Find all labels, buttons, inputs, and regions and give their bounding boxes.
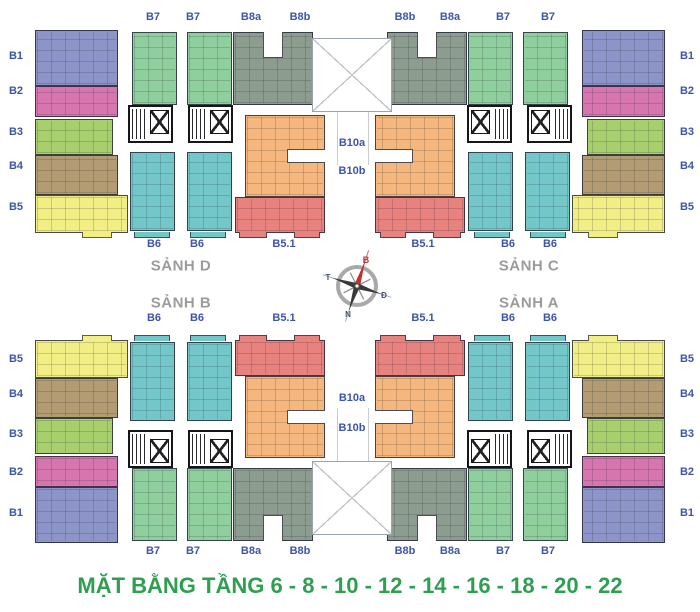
balcony-tab (190, 335, 226, 341)
unit-b7 (523, 468, 568, 541)
stair-elevator-core (188, 105, 233, 143)
unit-label-b4: B4 (9, 160, 23, 172)
compass-rose-icon: B T Đ N (322, 246, 392, 326)
tower-bottom-left-wing (0, 340, 350, 543)
unit-b6 (130, 152, 175, 231)
unit-b51 (375, 340, 465, 376)
unit-b3 (587, 418, 665, 454)
unit-label-b7: B7 (186, 545, 200, 557)
unit-label-b7: B7 (186, 11, 200, 23)
unit-b5 (35, 195, 128, 233)
unit-label-b6: B6 (190, 312, 204, 324)
stair-elevator-core (128, 105, 173, 143)
balcony-tab (433, 335, 461, 341)
balcony-tab (294, 232, 320, 238)
unit-label-b7: B7 (541, 545, 555, 557)
unit-b51 (235, 340, 325, 376)
unit-b1 (582, 487, 665, 543)
unit-label-b1: B1 (9, 507, 23, 519)
unit-label-b3: B3 (680, 428, 694, 440)
unit-label-b51: B5.1 (272, 238, 295, 250)
unit-label-b2: B2 (680, 85, 694, 97)
unit-b7 (468, 32, 513, 105)
unit-b2 (582, 86, 665, 117)
unit-b7 (468, 468, 513, 541)
unit-b10-notch (287, 149, 325, 163)
unit-label-b2: B2 (9, 466, 23, 478)
lobby-label-sanh-d: SẢNH D (151, 258, 212, 275)
unit-label-b8b: B8b (395, 545, 416, 557)
unit-b51 (235, 197, 325, 233)
unit-b8-notch (263, 32, 283, 58)
unit-label-b8a: B8a (440, 545, 460, 557)
unit-b3 (35, 418, 113, 454)
compass-north-label: B (363, 255, 370, 265)
balcony-tab (82, 335, 112, 341)
unit-label-b7: B7 (146, 11, 160, 23)
unit-label-b5: B5 (9, 201, 23, 213)
compass-west-label: T (326, 273, 331, 282)
unit-b7 (523, 32, 568, 105)
unit-label-b3: B3 (680, 126, 694, 138)
unit-b1 (35, 487, 118, 543)
unit-label-b6: B6 (190, 238, 204, 250)
unit-label-b8a: B8a (440, 11, 460, 23)
unit-b6 (187, 152, 232, 231)
unit-b10-notch (375, 410, 413, 424)
lobby-label-sanh-b: SẢNH B (151, 295, 212, 312)
unit-b3 (587, 119, 665, 155)
unit-b8-notch (417, 32, 437, 58)
balcony-tab (294, 335, 320, 341)
unit-b6 (187, 342, 232, 421)
unit-label-b8b: B8b (290, 11, 311, 23)
unit-label-b1: B1 (9, 50, 23, 62)
unit-b51 (375, 197, 465, 233)
unit-b4 (582, 155, 665, 195)
unit-label-b7: B7 (496, 11, 510, 23)
unit-b6 (468, 152, 513, 231)
unit-label-b8a: B8a (241, 545, 261, 557)
unit-b10-notch (375, 149, 413, 163)
balcony-tab (82, 232, 112, 238)
unit-label-b6: B6 (501, 238, 515, 250)
unit-label-b2: B2 (9, 85, 23, 97)
compass-east-label: Đ (381, 291, 387, 300)
unit-label-b4: B4 (680, 160, 694, 172)
unit-b2 (35, 86, 118, 117)
tower-bottom (0, 340, 700, 543)
light-well (312, 38, 392, 112)
unit-label-b51: B5.1 (272, 312, 295, 324)
unit-b2 (582, 456, 665, 487)
unit-label-b7: B7 (496, 545, 510, 557)
stair-elevator-core (467, 430, 512, 468)
unit-b10-notch (287, 410, 325, 424)
unit-label-b10a: B10a (339, 137, 365, 149)
unit-b5 (35, 340, 128, 378)
stair-elevator-core (188, 430, 233, 468)
unit-label-b6: B6 (147, 312, 161, 324)
unit-label-b3: B3 (9, 428, 23, 440)
unit-label-b7: B7 (541, 11, 555, 23)
unit-label-b6: B6 (501, 312, 515, 324)
unit-label-b5: B5 (680, 201, 694, 213)
unit-b7 (132, 32, 177, 105)
balcony-tab (380, 232, 406, 238)
unit-b8-notch (263, 515, 283, 541)
stair-elevator-core (527, 105, 572, 143)
unit-label-b6: B6 (147, 238, 161, 250)
unit-label-b4: B4 (9, 388, 23, 400)
balcony-tab (239, 232, 267, 238)
unit-label-b2: B2 (680, 466, 694, 478)
unit-b6 (468, 342, 513, 421)
tower-bottom-right-wing (350, 340, 700, 543)
unit-label-b3: B3 (9, 126, 23, 138)
unit-b4 (35, 155, 118, 195)
unit-b6 (525, 152, 570, 231)
unit-b7 (187, 32, 232, 105)
light-well (312, 461, 392, 535)
tower-top-right-wing (350, 30, 700, 233)
stair-elevator-core (527, 430, 572, 468)
compass-south-label: N (345, 310, 351, 319)
balcony-tab (433, 232, 461, 238)
unit-b5 (572, 195, 665, 233)
unit-label-b1: B1 (680, 507, 694, 519)
unit-label-b10b: B10b (339, 165, 366, 177)
lobby-label-sanh-c: SẢNH C (499, 258, 560, 275)
balcony-tab (588, 232, 618, 238)
unit-label-b5: B5 (9, 353, 23, 365)
unit-label-b10b: B10b (339, 422, 366, 434)
balcony-tab (530, 335, 566, 341)
unit-b8-notch (417, 515, 437, 541)
unit-label-b10a: B10a (339, 392, 365, 404)
unit-b4 (582, 378, 665, 418)
stair-elevator-core (128, 430, 173, 468)
unit-label-b6: B6 (543, 238, 557, 250)
unit-label-b7: B7 (146, 545, 160, 557)
unit-b1 (35, 30, 118, 86)
unit-label-b8b: B8b (290, 545, 311, 557)
unit-b7 (187, 468, 232, 541)
unit-label-b8b: B8b (395, 11, 416, 23)
unit-b2 (35, 456, 118, 487)
tower-top (0, 30, 700, 233)
balcony-tab (380, 335, 406, 341)
tower-top-left-wing (0, 30, 350, 233)
unit-b4 (35, 378, 118, 418)
unit-label-b4: B4 (680, 388, 694, 400)
balcony-tab (474, 335, 510, 341)
unit-b6 (525, 342, 570, 421)
unit-label-b51: B5.1 (411, 238, 434, 250)
unit-label-b1: B1 (680, 50, 694, 62)
unit-b7 (132, 468, 177, 541)
corridor-channel (337, 408, 369, 461)
unit-b5 (572, 340, 665, 378)
balcony-tab (588, 335, 618, 341)
balcony-tab (134, 335, 170, 341)
unit-label-b6: B6 (543, 312, 557, 324)
unit-label-b51: B5.1 (411, 312, 434, 324)
unit-b3 (35, 119, 113, 155)
stair-elevator-core (467, 105, 512, 143)
balcony-tab (239, 335, 267, 341)
unit-label-b5: B5 (680, 353, 694, 365)
lobby-label-sanh-a: SẢNH A (499, 295, 559, 312)
floor-plan: B7 B7 B8a B8b B8b B8a B7 B7 B1 B2 B3 B4 … (0, 0, 700, 612)
unit-b6 (130, 342, 175, 421)
floor-plan-title: MẶT BẰNG TẦNG 6 - 8 - 10 - 12 - 14 - 16 … (77, 573, 622, 599)
unit-label-b8a: B8a (241, 11, 261, 23)
unit-b1 (582, 30, 665, 86)
